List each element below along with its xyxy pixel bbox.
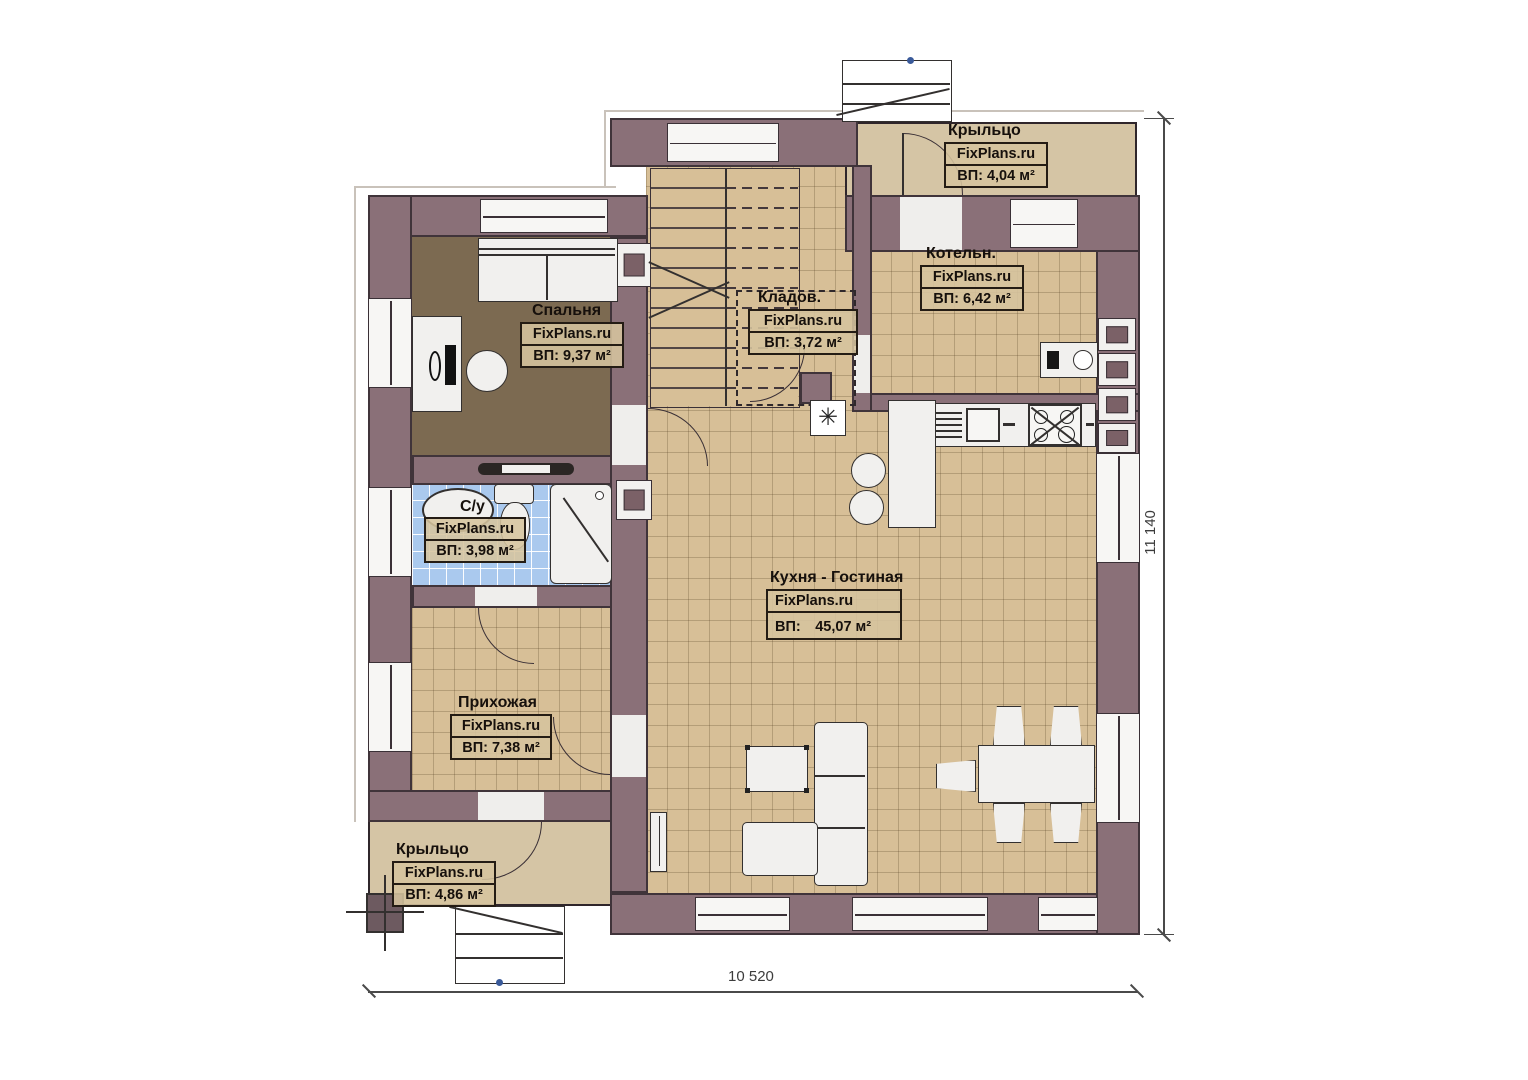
room-infobox: FixPlans.ru ВП: 3,72 м² bbox=[748, 309, 858, 355]
brand-label: FixPlans.ru bbox=[768, 591, 900, 611]
wall-pillar bbox=[616, 480, 652, 520]
dimension-line-right bbox=[1163, 118, 1165, 935]
exterior-wall-under-top-porch bbox=[845, 195, 1140, 252]
window bbox=[695, 897, 790, 931]
dimension-ext bbox=[1144, 118, 1174, 119]
corner-marker-cross bbox=[384, 875, 386, 951]
room-infobox: FixPlans.ru ВП: 7,38 м² bbox=[450, 714, 552, 760]
room-infobox: FixPlans.ru ВП: 6,42 м² bbox=[920, 265, 1024, 311]
door-opening-bathroom bbox=[475, 587, 537, 606]
floor-plan-canvas: ✳ Спальня FixPlans.ru ВП: 9,37 м² Кладов bbox=[0, 0, 1528, 1080]
room-label-boiler: Котельн. FixPlans.ru ВП: 6,42 м² bbox=[920, 245, 1024, 311]
dimension-ext bbox=[1144, 934, 1174, 935]
dining-chair-symbol bbox=[993, 803, 1025, 843]
sofa-symbol bbox=[742, 822, 818, 876]
area-label: ВП: 7,38 м² bbox=[452, 736, 550, 758]
window bbox=[667, 123, 779, 162]
room-label-bedroom: Спальня FixPlans.ru ВП: 9,37 м² bbox=[520, 302, 624, 368]
area-label: ВП: 3,98 м² bbox=[426, 539, 524, 561]
room-infobox: FixPlans.ru ВП: 3,98 м² bbox=[424, 517, 526, 563]
door-opening-bedroom bbox=[612, 405, 646, 465]
kitchen-sink-bowl bbox=[966, 408, 1000, 442]
room-infobox: FixPlans.ru ВП: 45,07 м² bbox=[766, 589, 902, 640]
window bbox=[1010, 199, 1078, 248]
brand-label: FixPlans.ru bbox=[750, 311, 856, 331]
dining-chair-symbol bbox=[1050, 803, 1082, 843]
sofa-symbol bbox=[814, 722, 868, 886]
area-label: ВП: 6,42 м² bbox=[922, 287, 1022, 309]
room-name: Кладов. bbox=[758, 289, 858, 307]
area-label: ВП: 4,04 м² bbox=[946, 164, 1046, 186]
area-label: ВП: 4,86 м² bbox=[394, 883, 494, 905]
brand-label: FixPlans.ru bbox=[922, 267, 1022, 287]
roof-overhang-line bbox=[354, 186, 356, 822]
room-infobox: FixPlans.ru ВП: 9,37 м² bbox=[520, 322, 624, 368]
window bbox=[852, 897, 988, 931]
room-name: Кухня - Гостиная bbox=[770, 569, 903, 587]
room-name: Спальня bbox=[532, 302, 624, 320]
radiator-symbol bbox=[650, 812, 667, 872]
room-label-storage: Кладов. FixPlans.ru ВП: 3,72 м² bbox=[748, 289, 858, 355]
window bbox=[368, 298, 412, 388]
dimension-label-bottom: 10 520 bbox=[728, 968, 774, 985]
exterior-wall-right bbox=[1096, 195, 1140, 935]
brand-label: FixPlans.ru bbox=[946, 144, 1046, 164]
door-opening-hallway-kitchen bbox=[612, 715, 646, 777]
window bbox=[480, 199, 608, 233]
office-chair-symbol bbox=[466, 350, 508, 392]
counter-dash bbox=[1086, 423, 1094, 426]
brand-label: FixPlans.ru bbox=[452, 716, 550, 736]
fireplace-stove-symbol: ✳ bbox=[810, 400, 846, 436]
dimension-line-bottom bbox=[368, 991, 1138, 993]
door-leaf bbox=[902, 133, 904, 195]
door-opening-entry-bottom bbox=[478, 792, 544, 820]
room-name: Прихожая bbox=[458, 694, 552, 712]
dining-chair-symbol bbox=[1050, 706, 1082, 746]
radiator-symbol bbox=[478, 463, 574, 475]
area-label: ВП: 9,37 м² bbox=[522, 344, 622, 366]
bar-stool-symbol bbox=[849, 490, 884, 525]
roof-overhang-line bbox=[604, 110, 606, 188]
entry-steps-top bbox=[842, 60, 952, 122]
counter-dash bbox=[1003, 423, 1015, 426]
stairs-stringer-line bbox=[725, 169, 727, 406]
area-label: ВП: 3,72 м² bbox=[750, 331, 856, 353]
boiler-unit-symbol bbox=[1040, 342, 1098, 378]
dining-table-symbol bbox=[978, 745, 1095, 803]
room-label-bathroom: С/у FixPlans.ru ВП: 3,98 м² bbox=[424, 498, 526, 563]
room-label-porch-bottom: Крыльцо FixPlans.ru ВП: 4,86 м² bbox=[392, 841, 496, 907]
stove-symbol bbox=[1028, 404, 1082, 446]
dining-chair-symbol bbox=[993, 706, 1025, 746]
appliance-symbol bbox=[1098, 423, 1136, 453]
bar-stool-symbol bbox=[851, 453, 886, 488]
room-label-porch-top: Крыльцо FixPlans.ru ВП: 4,04 м² bbox=[944, 122, 1048, 188]
door-opening-entry-top bbox=[900, 197, 962, 250]
room-label-kitchen-living: Кухня - Гостиная FixPlans.ru ВП: 45,07 м… bbox=[766, 569, 903, 640]
appliance-symbol bbox=[1098, 318, 1136, 351]
coffee-table-symbol bbox=[746, 746, 808, 792]
room-name: С/у bbox=[460, 498, 526, 516]
kitchen-island bbox=[888, 400, 936, 528]
kitchen-sink-symbol bbox=[934, 407, 966, 443]
desk-symbol bbox=[412, 316, 462, 412]
window bbox=[1096, 713, 1140, 823]
window bbox=[368, 662, 412, 752]
dimension-label-right: 11 140 bbox=[1142, 510, 1159, 555]
roof-overhang-line bbox=[354, 186, 616, 188]
wall-pillar bbox=[616, 243, 652, 287]
area-label: ВП: 45,07 м² bbox=[768, 611, 900, 638]
room-name: Крыльцо bbox=[396, 841, 496, 859]
window bbox=[1038, 897, 1098, 931]
appliance-symbol bbox=[1098, 388, 1136, 421]
room-label-hallway: Прихожая FixPlans.ru ВП: 7,38 м² bbox=[450, 694, 552, 760]
window bbox=[1096, 453, 1140, 563]
entry-steps-bottom bbox=[455, 906, 565, 984]
bed-symbol bbox=[478, 238, 618, 302]
window bbox=[368, 487, 412, 577]
room-name: Крыльцо bbox=[948, 122, 1048, 140]
room-name: Котельн. bbox=[926, 245, 1024, 263]
brand-label: FixPlans.ru bbox=[394, 863, 494, 883]
brand-label: FixPlans.ru bbox=[426, 519, 524, 539]
dining-chair-symbol bbox=[936, 760, 976, 792]
shower-symbol bbox=[550, 484, 612, 584]
room-infobox: FixPlans.ru ВП: 4,04 м² bbox=[944, 142, 1048, 188]
appliance-symbol bbox=[1098, 353, 1136, 386]
brand-label: FixPlans.ru bbox=[522, 324, 622, 344]
room-infobox: FixPlans.ru ВП: 4,86 м² bbox=[392, 861, 496, 907]
